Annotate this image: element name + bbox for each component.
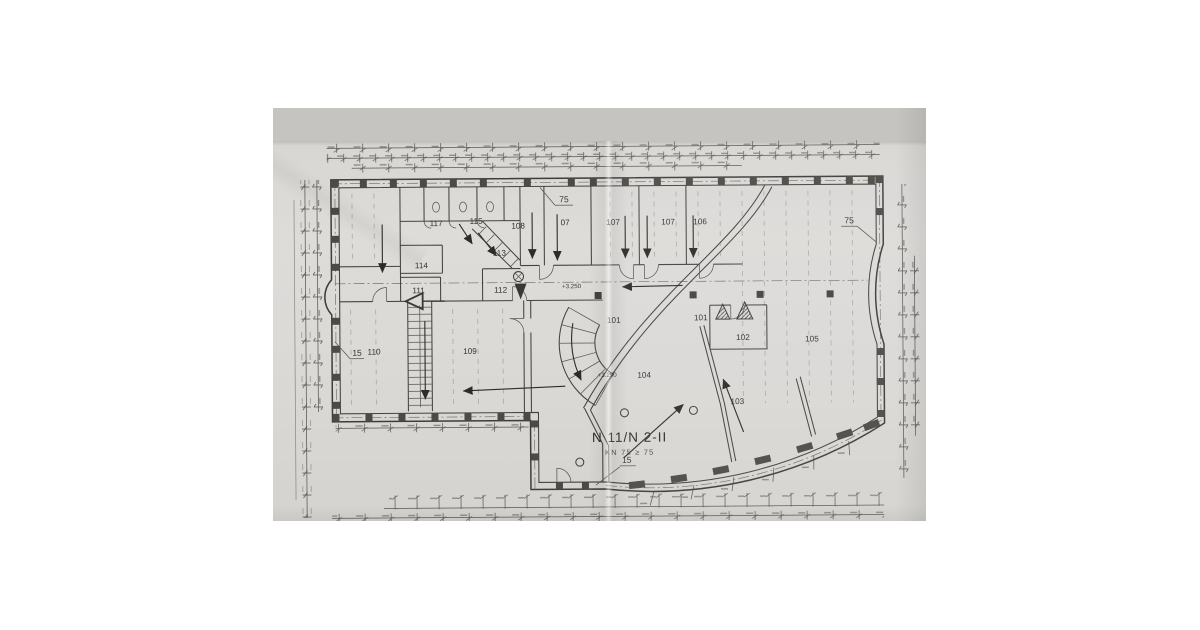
room-label-106: 106: [693, 217, 707, 226]
annotation-arrows: [382, 211, 744, 460]
room-label-103: 103: [731, 397, 745, 406]
room-label-112: 112: [494, 286, 508, 295]
room-label-109: 109: [463, 347, 477, 356]
solid-triangle-symbol: [515, 284, 527, 300]
room-label-104: 104: [637, 371, 651, 380]
elevation-label: +3.250: [562, 283, 582, 290]
wall-note-left: 15: [352, 348, 362, 358]
room-label-113: 113: [493, 249, 507, 258]
elevation-marks: +3.250 +3.250: [562, 283, 617, 379]
fan-stair: [559, 307, 614, 406]
room-label-105: 105: [805, 334, 819, 343]
floor-plan-drawing: 117 115 113 114 111 112 108 07 107 107 1…: [273, 108, 926, 521]
page: 117 115 113 114 111 112 108 07 107 107 1…: [0, 0, 1200, 630]
room-label-07: 07: [561, 218, 571, 227]
interior-walls: [339, 184, 835, 483]
drawing-title: N 11/N 2-II: [592, 430, 667, 446]
room-label-101b: 101: [694, 313, 708, 322]
room-labels: 117 115 113 114 111 112 108 07 107 107 1…: [367, 214, 820, 408]
straight-stair: [408, 301, 433, 411]
room-label-108: 108: [511, 222, 525, 231]
door-swings: [372, 219, 746, 484]
room-label-107b: 107: [661, 217, 675, 226]
room-label-107a: 107: [606, 218, 620, 227]
room-label-101a: 101: [607, 316, 621, 325]
room-label-115: 115: [470, 217, 484, 226]
room-label-102: 102: [736, 333, 750, 342]
hatched-triangle-symbol: [716, 304, 730, 319]
drawing-subtitle: KN 75 ≥ 75: [605, 448, 655, 457]
floor-plan-photo: 117 115 113 114 111 112 108 07 107 107 1…: [273, 108, 926, 521]
wall-note-right: 75: [844, 215, 854, 225]
room-label-114: 114: [415, 261, 429, 270]
wall-note-top: 75: [559, 194, 569, 204]
room-label-111: 111: [412, 286, 425, 295]
room-label-110: 110: [367, 348, 381, 357]
room-label-117: 117: [430, 219, 444, 228]
elevation-label: +3.250: [598, 372, 618, 379]
dimension-chains: [294, 140, 921, 521]
